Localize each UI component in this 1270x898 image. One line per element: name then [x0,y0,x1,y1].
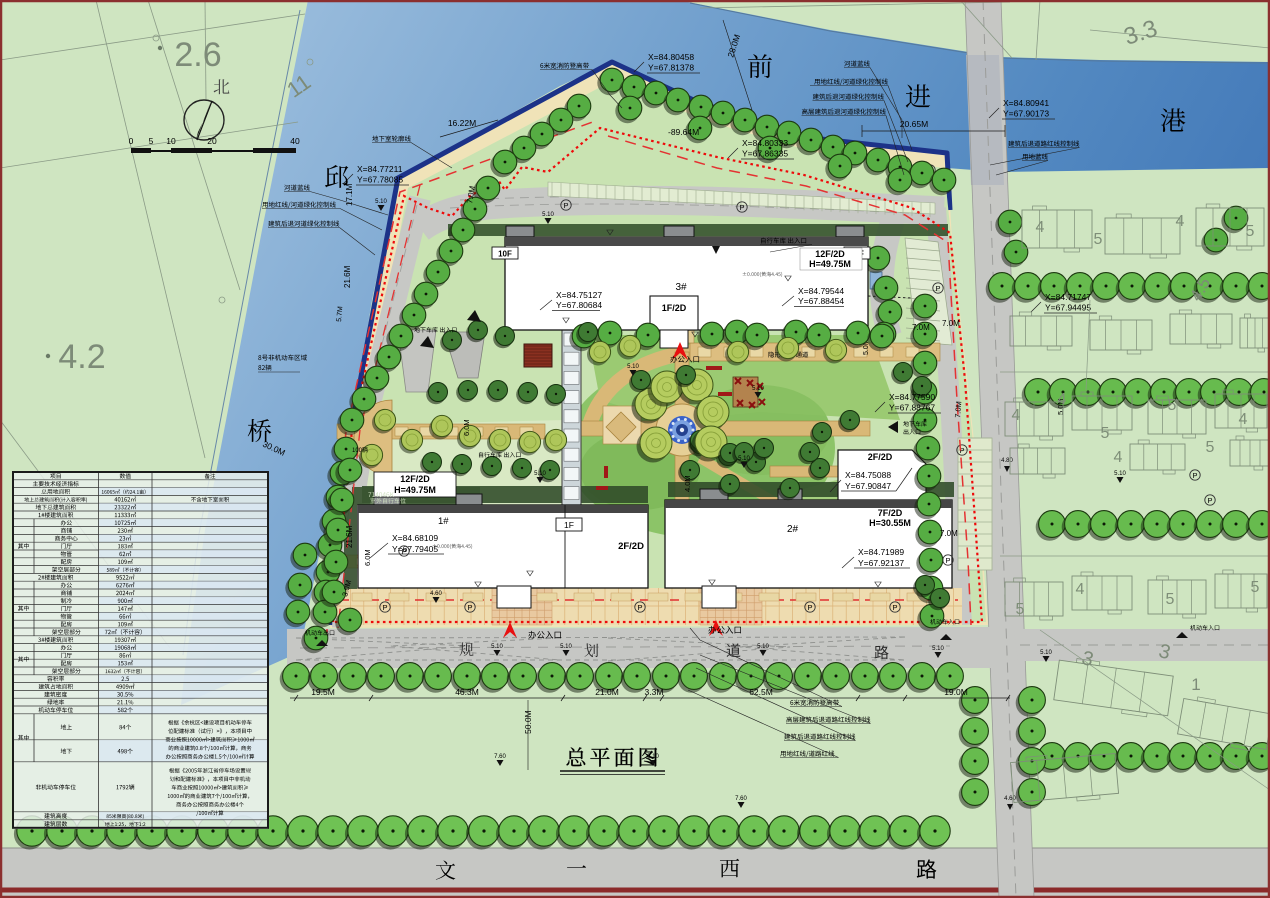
svg-text:Y=67.90173: Y=67.90173 [1003,109,1049,119]
svg-text:7.0M: 7.0M [940,529,958,538]
svg-text:7.0M: 7.0M [953,401,963,418]
svg-text:5.10: 5.10 [375,199,387,205]
svg-text:5: 5 [1168,397,1177,414]
svg-text:7F/2D: 7F/2D [878,508,903,518]
svg-text:0: 0 [129,136,134,146]
svg-text:4: 4 [1058,391,1067,408]
svg-text:Y=67.86335: Y=67.86335 [742,149,788,159]
svg-text:P: P [401,547,406,556]
svg-text:1#: 1# [438,516,449,527]
svg-text:5: 5 [1094,231,1103,248]
svg-text:X=84.79544: X=84.79544 [798,286,844,296]
svg-text:H=49.75M: H=49.75M [394,485,436,495]
svg-text:X=84.80941: X=84.80941 [1003,98,1049,108]
svg-text:Y=67.78085: Y=67.78085 [357,175,403,185]
svg-text:P: P [1192,471,1197,480]
svg-text:6.0M: 6.0M [462,419,471,436]
svg-text:3.3M: 3.3M [645,687,664,697]
svg-text:X=84.77211: X=84.77211 [357,164,403,174]
svg-text:1: 1 [1191,675,1200,694]
svg-text:10: 10 [166,136,176,146]
svg-text:P: P [945,556,950,565]
svg-text:5.10: 5.10 [738,456,750,462]
svg-text:7.0M: 7.0M [942,319,960,328]
svg-text:5: 5 [1016,601,1025,618]
svg-text:21.6M: 21.6M [345,525,354,548]
svg-text:P: P [382,603,387,612]
svg-text:5.7M: 5.7M [336,306,344,322]
svg-text:P: P [637,603,642,612]
svg-text:X=84.80333: X=84.80333 [742,138,788,148]
svg-text:5.10: 5.10 [534,471,546,477]
svg-text:10F: 10F [498,250,512,259]
svg-text:16.22M: 16.22M [448,118,476,128]
svg-text:17.1M: 17.1M [345,183,354,206]
svg-text:X=84.75127: X=84.75127 [556,290,602,300]
svg-text:P: P [892,603,897,612]
svg-text:Y=67.92137: Y=67.92137 [858,558,904,568]
svg-text:4.60: 4.60 [1004,796,1016,802]
svg-text:6.0M: 6.0M [363,549,372,566]
svg-text:46.3M: 46.3M [455,687,479,697]
svg-text:5.10: 5.10 [1114,471,1126,477]
svg-text:5: 5 [1206,439,1215,456]
svg-text:1F/2D: 1F/2D [662,303,687,313]
svg-text:P: P [935,284,940,293]
svg-text:5.10: 5.10 [932,646,944,652]
svg-text:7.0M: 7.0M [912,323,930,332]
svg-text:5: 5 [1246,223,1255,240]
svg-text:X=84.77590: X=84.77590 [889,392,935,402]
svg-text:5: 5 [1251,579,1260,596]
svg-text:4.2: 4.2 [58,338,105,376]
svg-text:H=30.55M: H=30.55M [869,518,911,528]
svg-text:Y=67.88767: Y=67.88767 [889,403,935,413]
svg-text:X=84.71747: X=84.71747 [1045,292,1091,302]
svg-text:2F/2D: 2F/2D [618,541,644,552]
svg-text:7.60: 7.60 [735,796,747,802]
svg-text:4: 4 [1176,213,1185,230]
svg-text:Y=67.94495: Y=67.94495 [1045,303,1091,313]
svg-text:5.10: 5.10 [627,364,639,370]
svg-text:P: P [807,603,812,612]
svg-text:2#: 2# [787,524,799,535]
svg-text:4.0M: 4.0M [683,475,692,492]
svg-text:4.60: 4.60 [430,591,442,597]
svg-text:4: 4 [1114,449,1123,466]
svg-text:7.60: 7.60 [494,754,506,760]
svg-text:4: 4 [1012,407,1021,424]
svg-text:12F/2D: 12F/2D [815,249,845,259]
svg-text:-89.64M: -89.64M [668,127,699,137]
svg-text:2F/2D: 2F/2D [868,452,893,462]
svg-text:40: 40 [290,136,300,146]
svg-text:3#: 3# [675,282,687,293]
svg-text:12F/2D: 12F/2D [400,474,430,484]
svg-text:5.10: 5.10 [757,644,769,650]
svg-text:5.10: 5.10 [752,386,764,392]
svg-text:4.80: 4.80 [1001,458,1013,464]
svg-text:Y=67.88454: Y=67.88454 [798,296,844,306]
svg-text:P: P [1207,496,1212,505]
svg-text:X=84.71989: X=84.71989 [858,547,904,557]
svg-text:X=84.75088: X=84.75088 [845,470,891,480]
svg-text:5.10: 5.10 [1040,650,1052,656]
svg-text:20.65M: 20.65M [900,119,928,129]
svg-text:X=84.68109: X=84.68109 [392,533,438,543]
svg-text:5.10: 5.10 [491,644,503,650]
svg-text:Y=67.80684: Y=67.80684 [556,300,602,310]
svg-text:19.0M: 19.0M [944,687,968,697]
svg-text:Y=67.81378: Y=67.81378 [648,63,694,73]
svg-text:5: 5 [1101,425,1110,442]
svg-text:P: P [467,603,472,612]
svg-text:5.10: 5.10 [560,644,572,650]
svg-text:4: 4 [1239,411,1248,428]
svg-text:1F: 1F [564,520,574,530]
svg-text:P: P [563,201,568,210]
svg-text:H=49.75M: H=49.75M [809,259,851,269]
svg-text:4: 4 [1036,219,1045,236]
svg-text:19.5M: 19.5M [311,687,335,697]
svg-text:5: 5 [1166,591,1175,608]
svg-text:X=84.80458: X=84.80458 [648,52,694,62]
svg-text:21.0M: 21.0M [595,687,619,697]
svg-text:Y=67.90847: Y=67.90847 [845,481,891,491]
svg-text:21.6M: 21.6M [343,265,352,288]
svg-text:5.10: 5.10 [542,212,554,218]
svg-text:P: P [739,203,744,212]
svg-text:20: 20 [207,136,217,146]
svg-text:5: 5 [149,136,154,146]
svg-text:4: 4 [1076,581,1085,598]
svg-text:2.6: 2.6 [174,36,221,74]
svg-text:62.5M: 62.5M [749,687,773,697]
